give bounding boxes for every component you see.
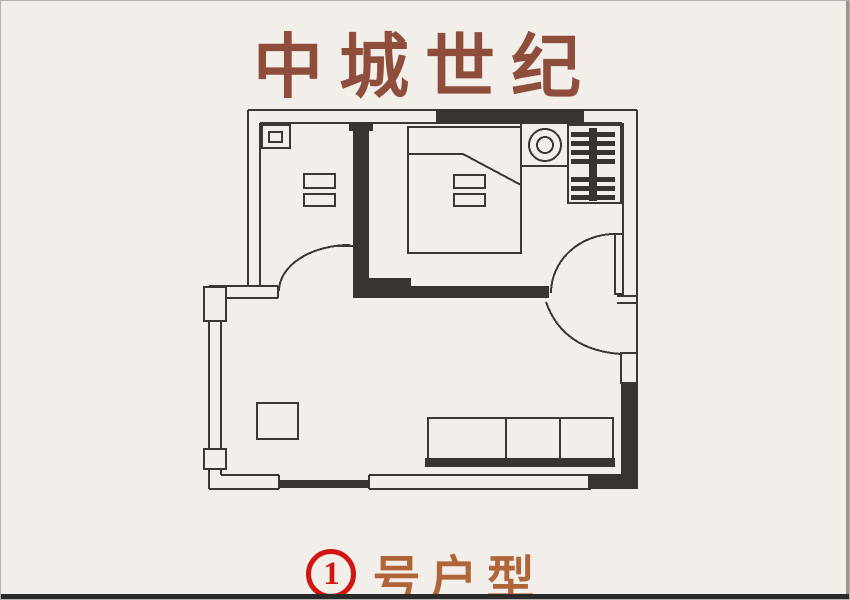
door-bedroom-icon bbox=[551, 234, 623, 294]
bed-icon bbox=[408, 127, 521, 253]
wall-interior-vertical bbox=[353, 123, 369, 285]
caption-label: 号户型 bbox=[372, 539, 543, 600]
room-upper-left bbox=[262, 125, 335, 206]
wall-right-lower bbox=[621, 383, 637, 486]
window-post-top bbox=[204, 287, 226, 321]
coffee-table-icon bbox=[257, 403, 298, 439]
floorplan-page: 中城世纪 bbox=[0, 0, 850, 600]
right-edge-line bbox=[846, 1, 849, 599]
doors bbox=[279, 234, 637, 383]
wall-interior-horizontal bbox=[353, 286, 549, 298]
door-left-room-icon bbox=[279, 245, 353, 291]
window-left bbox=[204, 287, 226, 469]
living-room bbox=[257, 403, 615, 467]
caption: 1 号户型 bbox=[1, 539, 849, 600]
wall-top-dark bbox=[436, 110, 584, 123]
window-post-bottom bbox=[204, 449, 226, 469]
bedroom bbox=[408, 123, 621, 253]
nightstand-icon bbox=[304, 174, 335, 206]
floor-plan bbox=[1, 1, 850, 600]
wall-bottom-middle-line bbox=[279, 480, 369, 488]
bottom-border-line bbox=[1, 594, 849, 599]
radiator-icon bbox=[568, 125, 621, 203]
exhaust-fan-icon bbox=[521, 123, 568, 166]
wall-bottom-right bbox=[588, 474, 637, 489]
duct-box-icon bbox=[262, 125, 290, 148]
unit-number-badge: 1 bbox=[306, 549, 356, 599]
door-entry-icon bbox=[546, 302, 637, 383]
sofa-icon bbox=[425, 418, 615, 467]
